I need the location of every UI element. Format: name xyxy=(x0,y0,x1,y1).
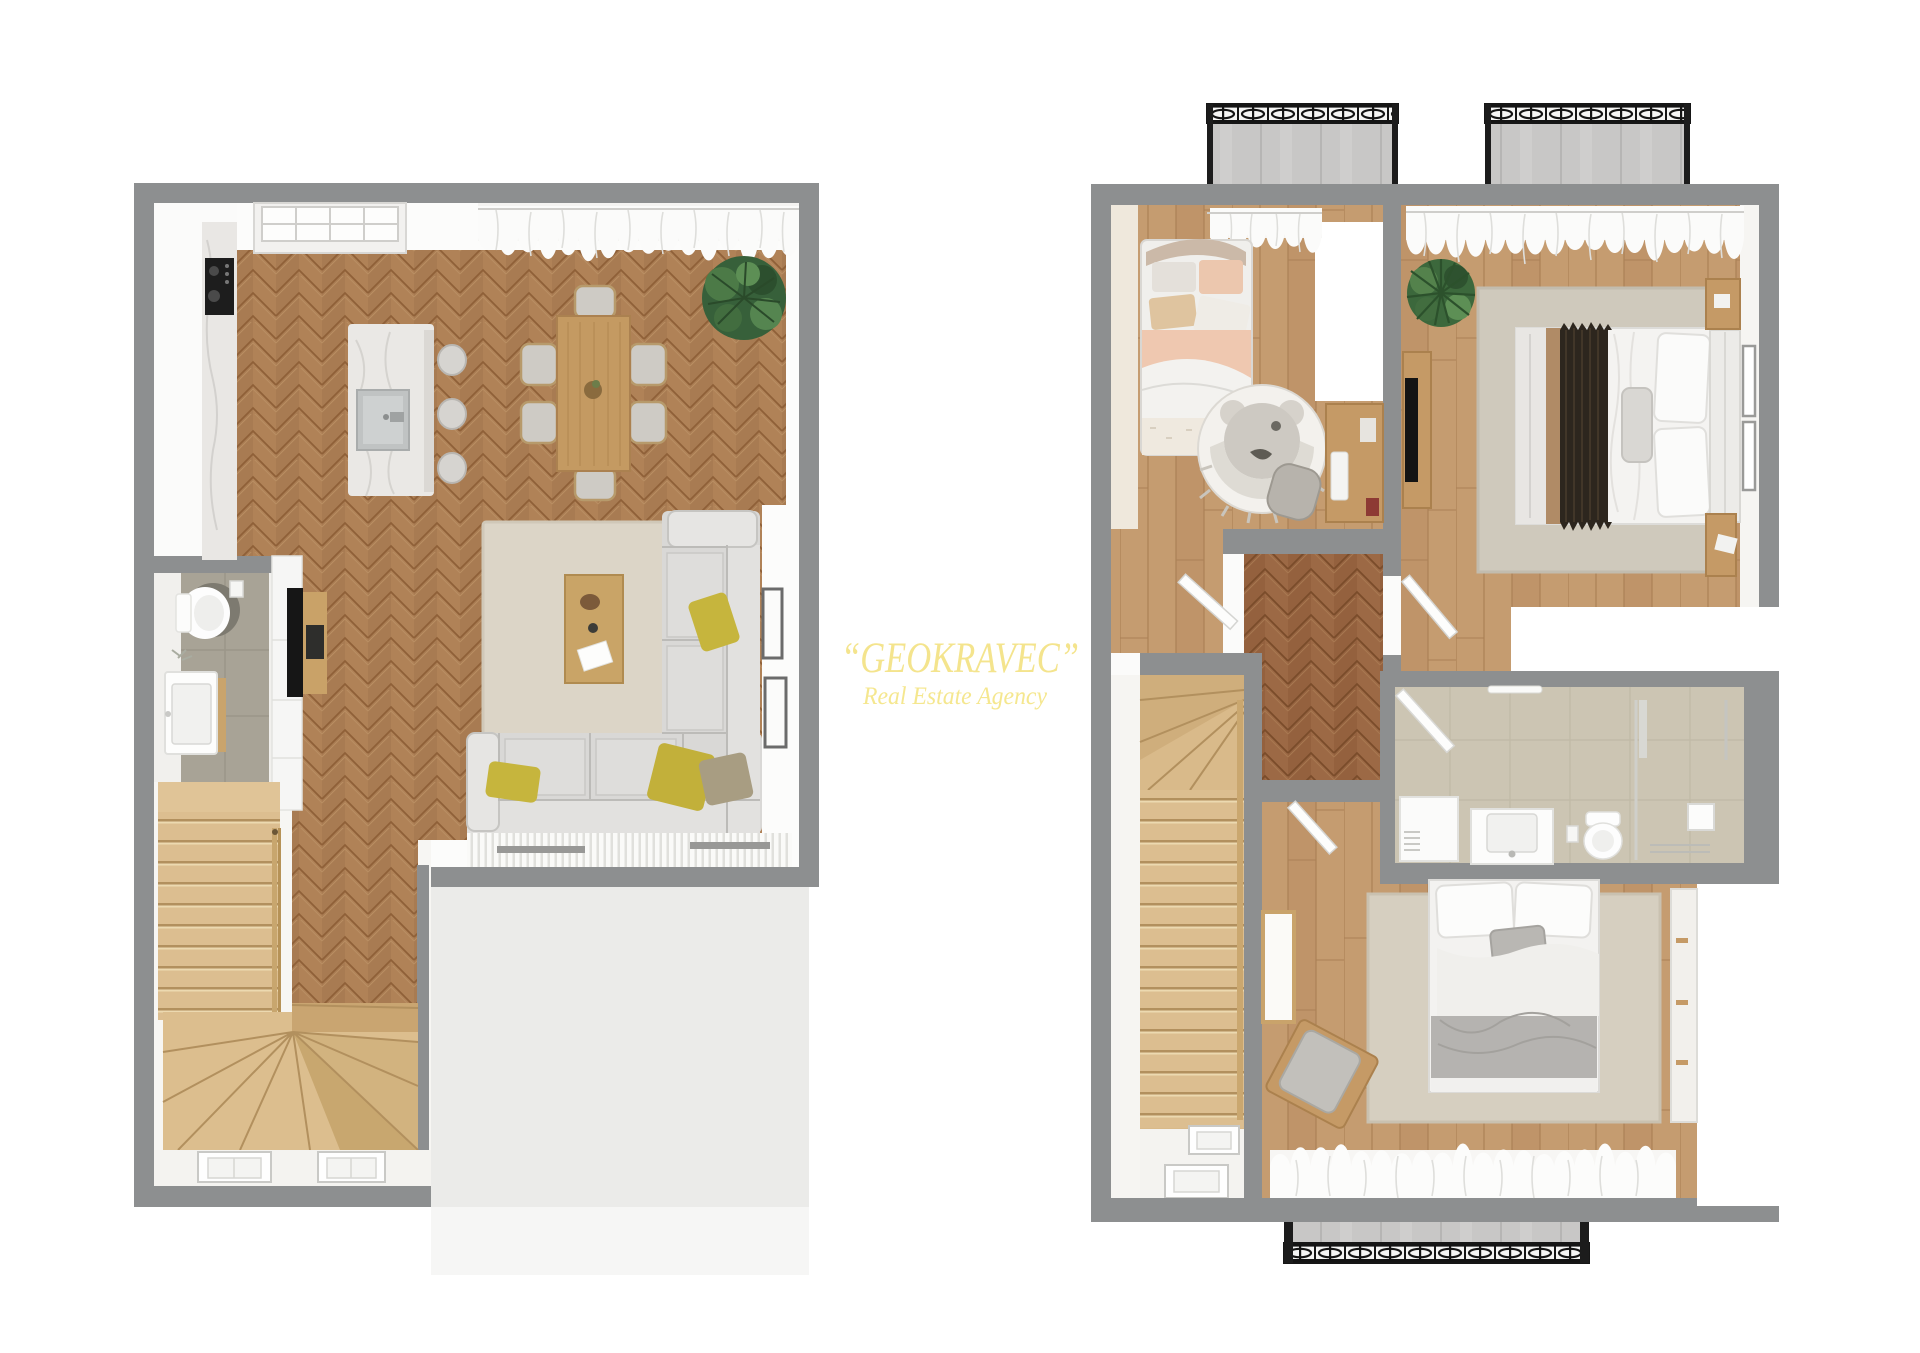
svg-text:“GEOKRAVEC”: “GEOKRAVEC” xyxy=(841,635,1079,682)
svg-text:Real Estate Agency: Real Estate Agency xyxy=(862,683,1048,710)
